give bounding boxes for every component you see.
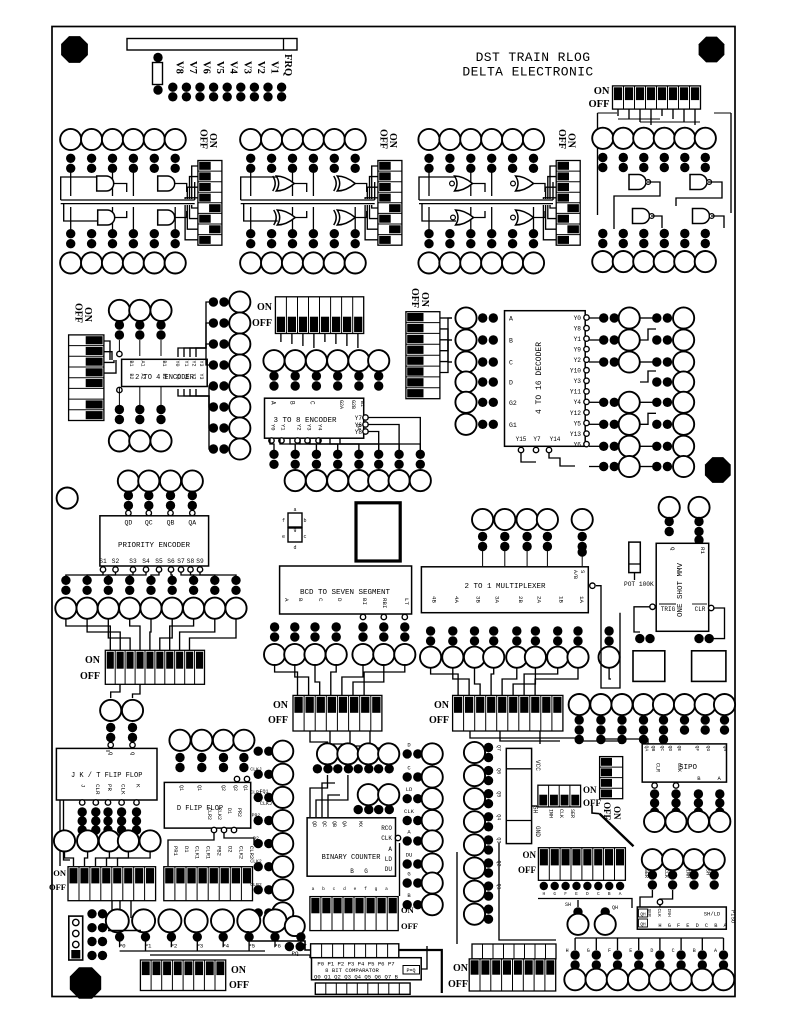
- svg-text:B1: B1: [128, 361, 134, 367]
- svg-text:INH: INH: [666, 909, 672, 918]
- svg-text:CLK2: CLK2: [237, 846, 244, 859]
- svg-text:E: E: [629, 948, 632, 954]
- svg-text:ON: ON: [273, 700, 289, 711]
- svg-text:V4: V4: [228, 61, 239, 75]
- svg-text:Q2: Q2: [220, 785, 226, 791]
- svg-text:Y0: Y0: [270, 424, 277, 431]
- svg-text:Y0: Y0: [174, 374, 180, 380]
- svg-text:ON: ON: [257, 302, 273, 313]
- svg-text:G: G: [587, 948, 590, 954]
- svg-text:OFF: OFF: [589, 99, 610, 110]
- svg-text:g: g: [293, 527, 296, 533]
- svg-text:PB2: PB2: [216, 846, 223, 856]
- svg-text:PR1: PR1: [172, 846, 179, 857]
- svg-text:S1: S1: [99, 558, 107, 565]
- svg-text:Y7: Y7: [533, 436, 541, 443]
- svg-text:S5: S5: [155, 558, 163, 565]
- svg-text:F: F: [677, 923, 680, 929]
- svg-text:CLKJ: CLKJ: [250, 766, 262, 772]
- svg-text:4 TO 16 DECODER: 4 TO 16 DECODER: [535, 342, 544, 414]
- svg-text:S4: S4: [142, 558, 150, 565]
- svg-text:Y8: Y8: [574, 325, 582, 332]
- svg-text:TRIG: TRIG: [661, 606, 676, 613]
- svg-text:G1: G1: [509, 422, 517, 429]
- svg-text:Y4: Y4: [317, 424, 324, 431]
- svg-text:b: b: [303, 518, 306, 524]
- svg-text:Y4: Y4: [574, 399, 582, 406]
- svg-text:ONE SHOT MMV: ONE SHOT MMV: [677, 562, 685, 617]
- svg-text:CLR: CLR: [695, 606, 706, 613]
- svg-text:QD: QD: [124, 520, 132, 527]
- svg-text:ON: ON: [419, 292, 430, 308]
- svg-text:a: a: [312, 887, 315, 892]
- svg-text:DST TRAIN RLOG: DST TRAIN RLOG: [476, 50, 591, 65]
- svg-text:Y1: Y1: [183, 374, 189, 380]
- svg-text:QA: QA: [188, 520, 196, 527]
- svg-text:CLK: CLK: [558, 809, 564, 818]
- svg-text:3A: 3A: [494, 596, 501, 603]
- svg-text:ON: ON: [85, 655, 101, 666]
- svg-text:S7: S7: [177, 558, 185, 565]
- svg-text:c: c: [333, 887, 336, 892]
- svg-text:OFF: OFF: [198, 129, 209, 149]
- svg-text:GND: GND: [534, 826, 541, 837]
- svg-text:PRIORITY ENCODER: PRIORITY ENCODER: [118, 542, 191, 550]
- svg-text:Y0: Y0: [174, 361, 180, 367]
- svg-text:ON: ON: [53, 868, 67, 878]
- svg-text:D: D: [336, 598, 343, 602]
- svg-text:G2: G2: [509, 400, 517, 407]
- svg-text:G2B: G2B: [350, 400, 356, 409]
- svg-text:4B: 4B: [431, 596, 438, 603]
- svg-text:QG: QG: [705, 746, 711, 752]
- svg-text:G: G: [553, 891, 556, 897]
- svg-text:DU: DU: [385, 866, 393, 873]
- svg-text:LD: LD: [406, 786, 413, 793]
- svg-text:ON: ON: [594, 86, 610, 97]
- svg-text:OFF: OFF: [268, 715, 288, 726]
- svg-text:SH/LD: SH/LD: [704, 911, 721, 918]
- svg-text:G: G: [364, 868, 368, 875]
- svg-text:OFF: OFF: [252, 318, 272, 329]
- svg-text:Y7: Y7: [355, 415, 363, 422]
- svg-text:Y3: Y3: [306, 424, 313, 431]
- svg-text:CLK: CLK: [656, 909, 662, 918]
- svg-text:G2A: G2A: [338, 400, 344, 409]
- svg-text:F: F: [608, 948, 611, 954]
- svg-text:1B: 1B: [558, 596, 565, 603]
- svg-text:Y13: Y13: [570, 431, 581, 438]
- svg-text:S9: S9: [196, 558, 204, 565]
- svg-text:c: c: [303, 534, 306, 540]
- svg-text:G: G: [407, 871, 410, 878]
- svg-text:A/B: A/B: [572, 570, 578, 579]
- svg-text:QF: QF: [694, 746, 700, 752]
- svg-text:D: D: [696, 923, 699, 929]
- svg-text:Y6: Y6: [355, 422, 363, 429]
- svg-text:OFF: OFF: [378, 129, 389, 149]
- svg-text:ON: ON: [387, 133, 398, 149]
- svg-text:Y14: Y14: [550, 436, 561, 443]
- svg-text:D: D: [586, 891, 589, 897]
- svg-text:b: b: [322, 886, 325, 892]
- svg-text:QB: QB: [167, 520, 175, 527]
- svg-text:Y12: Y12: [570, 410, 581, 417]
- svg-text:OFF: OFF: [49, 882, 66, 892]
- svg-text:ON: ON: [612, 806, 622, 820]
- svg-text:B2: B2: [161, 374, 167, 380]
- svg-text:QE: QE: [676, 746, 682, 752]
- svg-text:Q3: Q3: [496, 837, 502, 843]
- svg-text:D2: D2: [253, 836, 259, 842]
- svg-text:d: d: [343, 886, 346, 892]
- svg-text:PR2: PR2: [236, 808, 242, 817]
- svg-text:BI: BI: [361, 598, 368, 605]
- svg-text:D1: D1: [226, 808, 232, 814]
- svg-text:Q1: Q1: [196, 785, 202, 791]
- svg-text:ON: ON: [566, 133, 577, 149]
- svg-text:B2: B2: [128, 374, 134, 380]
- svg-text:QC: QC: [659, 746, 665, 752]
- svg-text:CLKJ: CLKJ: [260, 801, 272, 807]
- svg-text:QH: QH: [612, 905, 618, 911]
- svg-text:Y3: Y3: [198, 374, 204, 380]
- svg-text:Q7: Q7: [496, 745, 502, 751]
- svg-text:VCC: VCC: [534, 760, 541, 771]
- svg-text:C: C: [705, 923, 708, 929]
- svg-text:G: G: [668, 923, 671, 929]
- svg-text:C: C: [597, 891, 600, 897]
- svg-text:f: f: [364, 886, 367, 892]
- svg-text:V3: V3: [241, 61, 252, 74]
- svg-text:INH: INH: [548, 809, 554, 818]
- svg-text:V2: V2: [255, 61, 266, 74]
- svg-text:H: H: [542, 891, 545, 897]
- svg-text:D2: D2: [226, 846, 233, 853]
- svg-text:CLK2: CLK2: [250, 859, 262, 865]
- svg-text:QD: QD: [667, 746, 673, 752]
- svg-text:OFF: OFF: [448, 979, 468, 990]
- svg-text:a: a: [293, 507, 296, 513]
- svg-text:CLR1: CLR1: [250, 789, 262, 795]
- svg-text:C: C: [509, 360, 513, 367]
- svg-text:OFF: OFF: [80, 671, 100, 682]
- svg-text:OFF: OFF: [429, 715, 449, 726]
- svg-text:D: D: [509, 380, 513, 387]
- svg-text:B: B: [693, 948, 696, 954]
- svg-text:A: A: [388, 846, 392, 853]
- svg-text:OFF: OFF: [556, 129, 567, 149]
- svg-text:OFF: OFF: [73, 303, 84, 323]
- svg-text:Y0: Y0: [574, 315, 582, 322]
- svg-text:CLR1: CLR1: [205, 846, 212, 860]
- svg-text:C: C: [309, 401, 316, 405]
- svg-text:Y2: Y2: [574, 357, 582, 364]
- svg-text:MX: MX: [357, 821, 363, 827]
- svg-text:f: f: [282, 518, 285, 524]
- svg-text:B: B: [509, 338, 513, 345]
- svg-text:ON: ON: [523, 850, 537, 860]
- svg-text:B: B: [714, 923, 717, 929]
- svg-text:V5: V5: [214, 61, 225, 74]
- svg-text:D: D: [650, 948, 653, 954]
- svg-text:C: C: [672, 948, 675, 954]
- svg-text:Q1: Q1: [242, 785, 248, 791]
- svg-text:QC: QC: [145, 520, 153, 527]
- svg-text:QA: QA: [341, 821, 347, 827]
- svg-text:QC: QC: [321, 821, 327, 827]
- svg-text:FRQ: FRQ: [282, 54, 293, 76]
- svg-text:A: A: [619, 891, 622, 897]
- svg-text:J K / T FLIP FLOP: J K / T FLIP FLOP: [71, 772, 142, 780]
- svg-text:Y9: Y9: [574, 346, 582, 353]
- svg-text:RBI: RBI: [381, 598, 388, 608]
- svg-text:Y5: Y5: [574, 420, 582, 427]
- svg-text:Q6: Q6: [496, 768, 502, 774]
- svg-text:BCD TO SEVEN SEGMENT: BCD TO SEVEN SEGMENT: [300, 589, 391, 597]
- svg-text:P=Q: P=Q: [406, 968, 415, 974]
- svg-text:ON: ON: [453, 963, 469, 974]
- svg-text:E: E: [686, 923, 689, 929]
- svg-text:QB: QB: [650, 746, 656, 752]
- svg-text:1A: 1A: [578, 596, 585, 603]
- svg-text:V1: V1: [269, 61, 280, 74]
- svg-text:OFF: OFF: [229, 980, 249, 991]
- svg-text:OFF: OFF: [409, 288, 420, 308]
- svg-text:Y11: Y11: [570, 389, 581, 396]
- svg-text:CLR2: CLR2: [206, 808, 212, 820]
- svg-text:Y6: Y6: [574, 441, 582, 448]
- svg-text:4A: 4A: [453, 596, 460, 603]
- svg-text:D1: D1: [183, 846, 190, 853]
- svg-text:A1: A1: [140, 361, 146, 367]
- svg-text:2B: 2B: [517, 596, 524, 603]
- svg-text:ON: ON: [82, 307, 93, 323]
- svg-text:Y1: Y1: [183, 361, 189, 367]
- svg-text:Y2: Y2: [191, 361, 197, 367]
- svg-text:OFF: OFF: [518, 865, 536, 875]
- svg-text:H: H: [566, 948, 569, 954]
- svg-text:Q2: Q2: [232, 785, 238, 791]
- svg-text:3B: 3B: [475, 596, 482, 603]
- svg-text:S3: S3: [129, 558, 137, 565]
- svg-text:A: A: [270, 401, 277, 405]
- svg-text:B: B: [289, 401, 296, 405]
- svg-text:a: a: [385, 887, 388, 892]
- svg-text:g: g: [375, 887, 378, 892]
- svg-text:PR: PR: [106, 784, 113, 791]
- svg-text:Y2: Y2: [191, 374, 197, 380]
- svg-text:Y1: Y1: [280, 424, 287, 431]
- svg-text:ON: ON: [434, 700, 450, 711]
- svg-text:Q1: Q1: [178, 785, 184, 791]
- svg-text:CLK1: CLK1: [194, 846, 201, 860]
- svg-text:DELTA ELECTRONIC: DELTA ELECTRONIC: [462, 65, 593, 80]
- svg-text:PISO: PISO: [730, 910, 737, 924]
- svg-text:OFF: OFF: [401, 921, 418, 931]
- svg-text:Y3: Y3: [574, 378, 582, 385]
- svg-text:ON: ON: [583, 785, 597, 795]
- svg-text:e: e: [282, 534, 285, 540]
- svg-text:LT: LT: [403, 598, 410, 605]
- svg-text:BINARY COUNTER: BINARY COUNTER: [322, 854, 382, 862]
- svg-text:QH: QH: [640, 923, 646, 928]
- svg-text:Q5: Q5: [496, 791, 502, 797]
- svg-text:Y10: Y10: [570, 368, 581, 375]
- svg-text:CLK: CLK: [120, 784, 127, 795]
- svg-text:POT 100K: POT 100K: [624, 581, 654, 588]
- svg-text:CLK: CLK: [404, 808, 415, 815]
- svg-text:Y2: Y2: [296, 424, 303, 431]
- svg-text:B: B: [297, 598, 304, 602]
- svg-text:DU: DU: [406, 852, 413, 859]
- svg-text:CLK: CLK: [676, 763, 682, 772]
- svg-text:ON: ON: [231, 965, 247, 976]
- svg-text:H: H: [658, 923, 661, 929]
- svg-text:A: A: [714, 948, 717, 954]
- svg-text:SER: SER: [569, 809, 575, 818]
- svg-text:B: B: [608, 891, 611, 897]
- svg-text:CLR2: CLR2: [250, 882, 262, 888]
- svg-text:CLR: CLR: [655, 763, 661, 772]
- svg-text:QD: QD: [311, 821, 317, 827]
- svg-text:2 TO 1 MULTIPLEXER: 2 TO 1 MULTIPLEXER: [464, 583, 546, 591]
- svg-text:2A: 2A: [535, 596, 542, 603]
- svg-text:e: e: [354, 887, 357, 892]
- svg-text:Y15: Y15: [516, 436, 527, 443]
- svg-text:F: F: [564, 891, 567, 897]
- svg-text:A: A: [509, 316, 513, 323]
- svg-text:QH: QH: [640, 913, 646, 918]
- svg-text:S6: S6: [167, 558, 175, 565]
- svg-text:CLK2: CLK2: [216, 808, 222, 820]
- svg-text:S8: S8: [187, 558, 195, 565]
- svg-text:S2: S2: [112, 558, 120, 565]
- svg-text:V8: V8: [173, 61, 184, 74]
- svg-text:QH: QH: [722, 746, 728, 752]
- svg-text:Y8: Y8: [355, 429, 363, 436]
- svg-text:B: B: [350, 868, 354, 875]
- svg-text:Q0 Q1 Q2 Q3 Q4 Q5 Q6 Q7 B: Q0 Q1 Q2 Q3 Q4 Q5 Q6 Q7 B: [314, 973, 399, 980]
- svg-text:A: A: [283, 598, 290, 602]
- svg-text:LD: LD: [385, 856, 393, 863]
- svg-text:CLR2: CLR2: [248, 846, 255, 859]
- svg-text:PQ: PQ: [292, 950, 299, 957]
- svg-text:Q: Q: [669, 547, 676, 551]
- svg-text:B1: B1: [161, 361, 167, 367]
- svg-text:V7: V7: [187, 61, 198, 74]
- svg-text:RCO: RCO: [381, 825, 392, 832]
- svg-text:C: C: [317, 598, 324, 602]
- svg-text:K: K: [135, 784, 142, 788]
- svg-text:CLK: CLK: [381, 835, 392, 842]
- svg-text:d: d: [293, 545, 296, 551]
- svg-text:PR2: PR2: [252, 813, 261, 819]
- svg-text:QB: QB: [331, 821, 337, 827]
- svg-text:J: J: [80, 784, 87, 787]
- svg-text:A2: A2: [140, 374, 146, 380]
- svg-text:Y3: Y3: [198, 361, 204, 367]
- svg-text:QA: QA: [644, 746, 650, 752]
- svg-text:CLR: CLR: [94, 784, 101, 795]
- svg-text:E: E: [575, 891, 578, 897]
- svg-text:B1: B1: [359, 401, 365, 407]
- svg-text:Q4: Q4: [496, 814, 502, 820]
- svg-text:R1: R1: [699, 547, 706, 554]
- svg-text:ON: ON: [207, 133, 218, 149]
- svg-text:SH: SH: [565, 902, 571, 908]
- svg-text:V6: V6: [201, 61, 212, 74]
- svg-text:Y1: Y1: [574, 336, 582, 343]
